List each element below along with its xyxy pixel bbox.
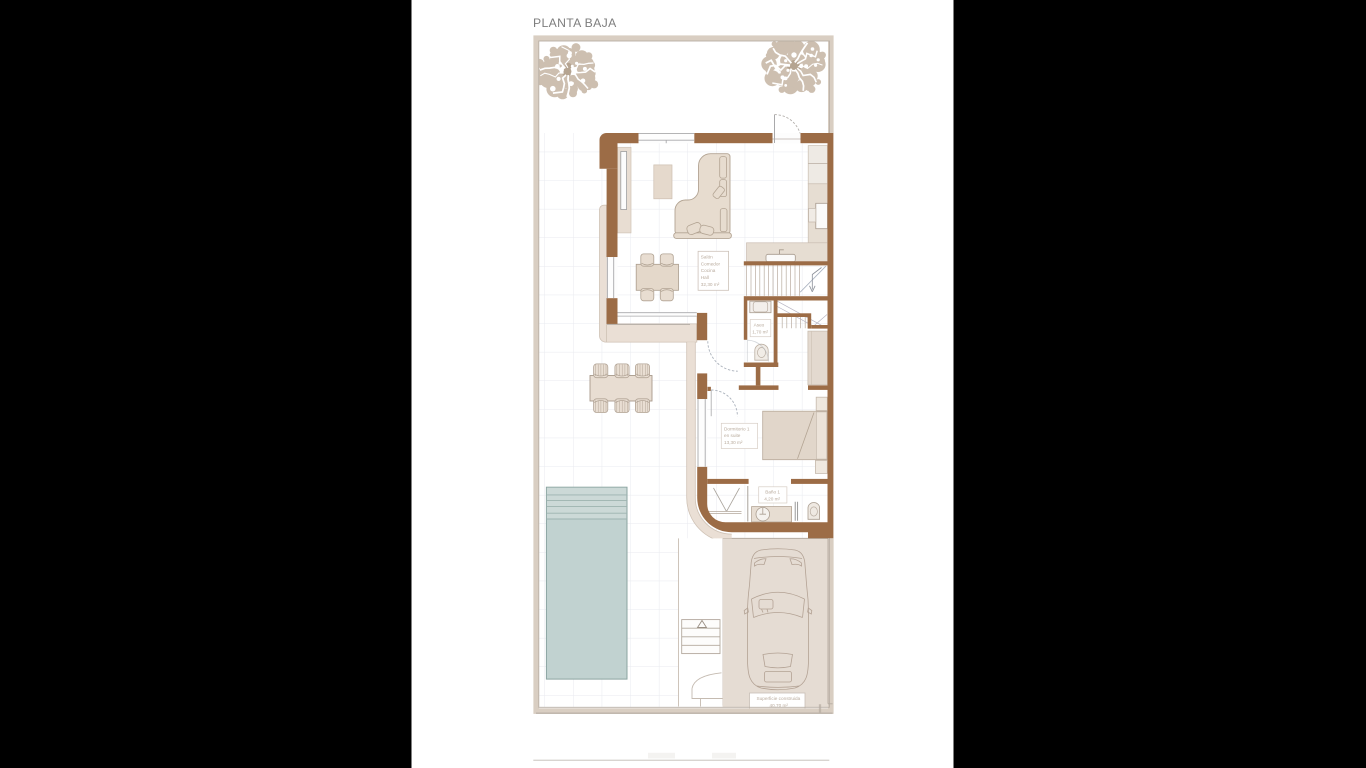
svg-text:Salón: Salón <box>701 255 713 260</box>
svg-text:Aseo: Aseo <box>754 323 765 328</box>
svg-text:1,70 m²: 1,70 m² <box>752 329 768 334</box>
svg-text:Dormitorio 1: Dormitorio 1 <box>724 426 750 431</box>
svg-text:Baño 1: Baño 1 <box>765 490 780 495</box>
svg-text:Comedor: Comedor <box>701 261 721 266</box>
svg-text:en suite: en suite <box>724 433 741 438</box>
svg-text:Cocina: Cocina <box>701 268 716 273</box>
svg-text:Superficie construida: Superficie construida <box>757 696 801 701</box>
svg-text:4,20 m²: 4,20 m² <box>764 496 780 501</box>
svg-text:Hall: Hall <box>701 275 709 280</box>
svg-text:PLANTA BAJA: PLANTA BAJA <box>533 16 617 30</box>
svg-text:13,30 m²: 13,30 m² <box>724 440 743 445</box>
svg-text:32,30 m²: 32,30 m² <box>701 282 720 287</box>
